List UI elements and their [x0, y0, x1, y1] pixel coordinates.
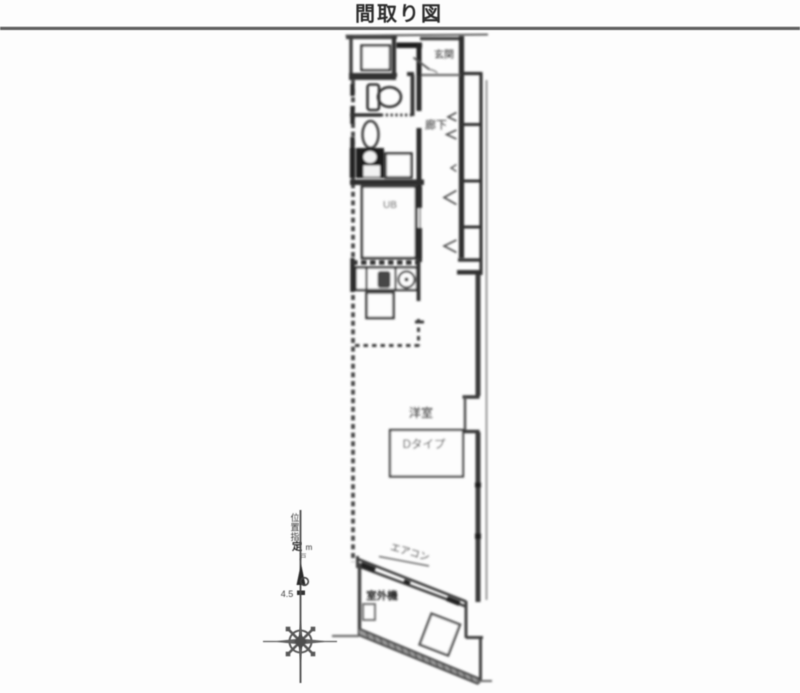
svg-text:間取り図: 間取り図: [355, 3, 443, 26]
svg-text:エアコン: エアコン: [389, 542, 430, 564]
svg-text:4.5: 4.5: [281, 589, 294, 599]
svg-text:m: m: [306, 543, 313, 552]
svg-text:指: 指: [290, 531, 299, 542]
svg-text:Dタイプ: Dタイプ: [403, 438, 446, 451]
svg-text:位: 位: [290, 512, 299, 523]
svg-text:洋室: 洋室: [409, 405, 433, 420]
svg-text:玄関: 玄関: [434, 48, 454, 61]
svg-text:室外機: 室外機: [366, 589, 398, 602]
svg-text:廊下: 廊下: [425, 118, 447, 132]
svg-text:置: 置: [290, 523, 299, 533]
svg-text:UB: UB: [383, 200, 397, 211]
